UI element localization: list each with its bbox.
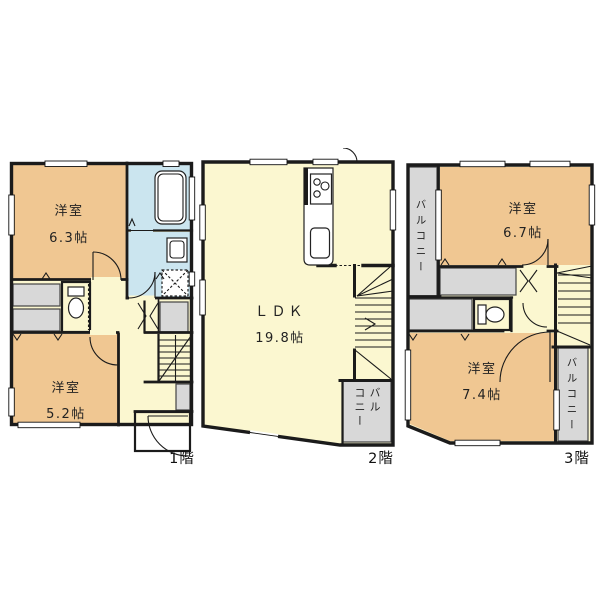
closet-3f-a <box>440 268 516 295</box>
storage-1f-2 <box>176 384 190 410</box>
balcony-3f-left-label: バルコニー <box>415 199 426 299</box>
balcony-3f-right-label: バルコニー <box>566 357 577 449</box>
washbasin-icon <box>167 238 187 262</box>
room-6-3-size: 6.3帖 <box>49 231 89 246</box>
room-7-4 <box>410 333 555 441</box>
floor-label-3f: 3階 <box>564 450 590 467</box>
toilet-icon-3f <box>478 305 504 324</box>
room-7-4-size: 7.4帖 <box>462 388 502 403</box>
room-6-7-name: 洋室 <box>508 201 537 217</box>
floor-plan-1f: 洋室 6.3帖 洋室 5.2帖 1階 <box>5 148 200 468</box>
bathtub-icon <box>155 171 186 224</box>
room-6-7-size: 6.7帖 <box>503 226 543 241</box>
floor-plan-canvas: 洋室 6.3帖 洋室 5.2帖 1階 <box>0 0 600 600</box>
kitchen-counter <box>304 168 333 265</box>
storage-1f <box>160 302 188 332</box>
balcony-2f-label-line1: バル <box>369 387 380 437</box>
room-6-3 <box>13 165 126 279</box>
ldk-name: ＬＤＫ <box>255 304 306 320</box>
room-5-2-name: 洋室 <box>51 380 80 396</box>
window-swing-arc <box>343 148 357 162</box>
floor-plan-2f: ＬＤＫ 19.8帖 2階 <box>198 148 398 468</box>
room-5-2-size: 5.2帖 <box>46 407 86 422</box>
floor-label-2f: 2階 <box>368 450 394 467</box>
washing-machine-icon <box>162 270 188 296</box>
closet-3f-b <box>408 299 472 330</box>
stove-icon <box>311 174 332 204</box>
room-6-3-name: 洋室 <box>54 203 83 219</box>
balcony-2f-label-line2: コニー <box>354 387 365 447</box>
room-7-4-name: 洋室 <box>467 361 496 377</box>
ldk-size: 19.8帖 <box>255 331 304 346</box>
balcony-2f <box>343 381 391 442</box>
closet-1f-lower <box>13 309 60 331</box>
closet-1f-upper <box>13 284 60 306</box>
floor-label-1f: 1階 <box>169 450 195 467</box>
kitchen-sink-icon <box>311 228 330 258</box>
